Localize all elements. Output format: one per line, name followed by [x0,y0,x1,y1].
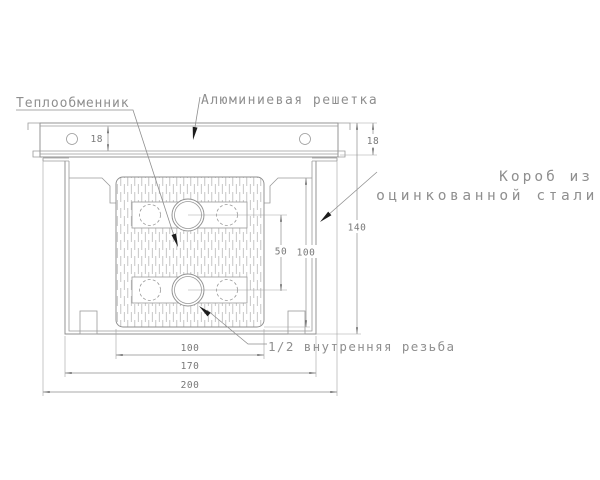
dim-exchanger-width: 100 [181,343,200,354]
grille-profile-lines [40,126,338,154]
dim-grille-height-right: 18 [367,136,379,147]
arrowhead-aluminum-grille [193,127,198,140]
label-box-material-line1: Короб из [499,169,593,185]
box-left-bracket [69,178,116,203]
grille-hole-left [67,134,78,145]
heat-exchanger [116,177,287,327]
leader-box-material [323,172,377,220]
aluminum-grille [28,123,350,157]
technical-drawing-convector-section: 18 18 140 100 50 100 170 200 Теплообменн… [0,0,600,480]
drawing-canvas: 18 18 140 100 50 100 170 200 Теплообменн… [0,0,600,480]
grille-right-hook [338,123,350,157]
dim-pipe-spacing: 50 [275,247,287,258]
box-right-bracket [264,178,312,203]
leader-labels: Теплообменник Алюминиевая решетка Короб … [16,93,598,354]
dim-grille-width: 200 [181,380,200,391]
grille-left-hook [28,123,40,157]
label-thread: 1/2 внутренняя резьба [268,339,455,354]
dim-exchanger-height: 100 [297,248,316,259]
box-left-foot [80,311,97,334]
label-aluminum-grille: Алюминиевая решетка [201,93,378,108]
grille-hole-right [300,134,311,145]
grille-outline [40,123,338,157]
box-right-lip [312,158,337,161]
label-heat-exchanger: Теплообменник [16,96,129,111]
box-left-lip [43,158,69,161]
dim-overall-height: 140 [348,223,367,234]
label-box-material-line2: оцинкованной стали [376,188,598,204]
dim-grille-height-left: 18 [91,134,103,145]
box-right-foot [288,311,305,334]
dim-box-width: 170 [181,361,200,372]
